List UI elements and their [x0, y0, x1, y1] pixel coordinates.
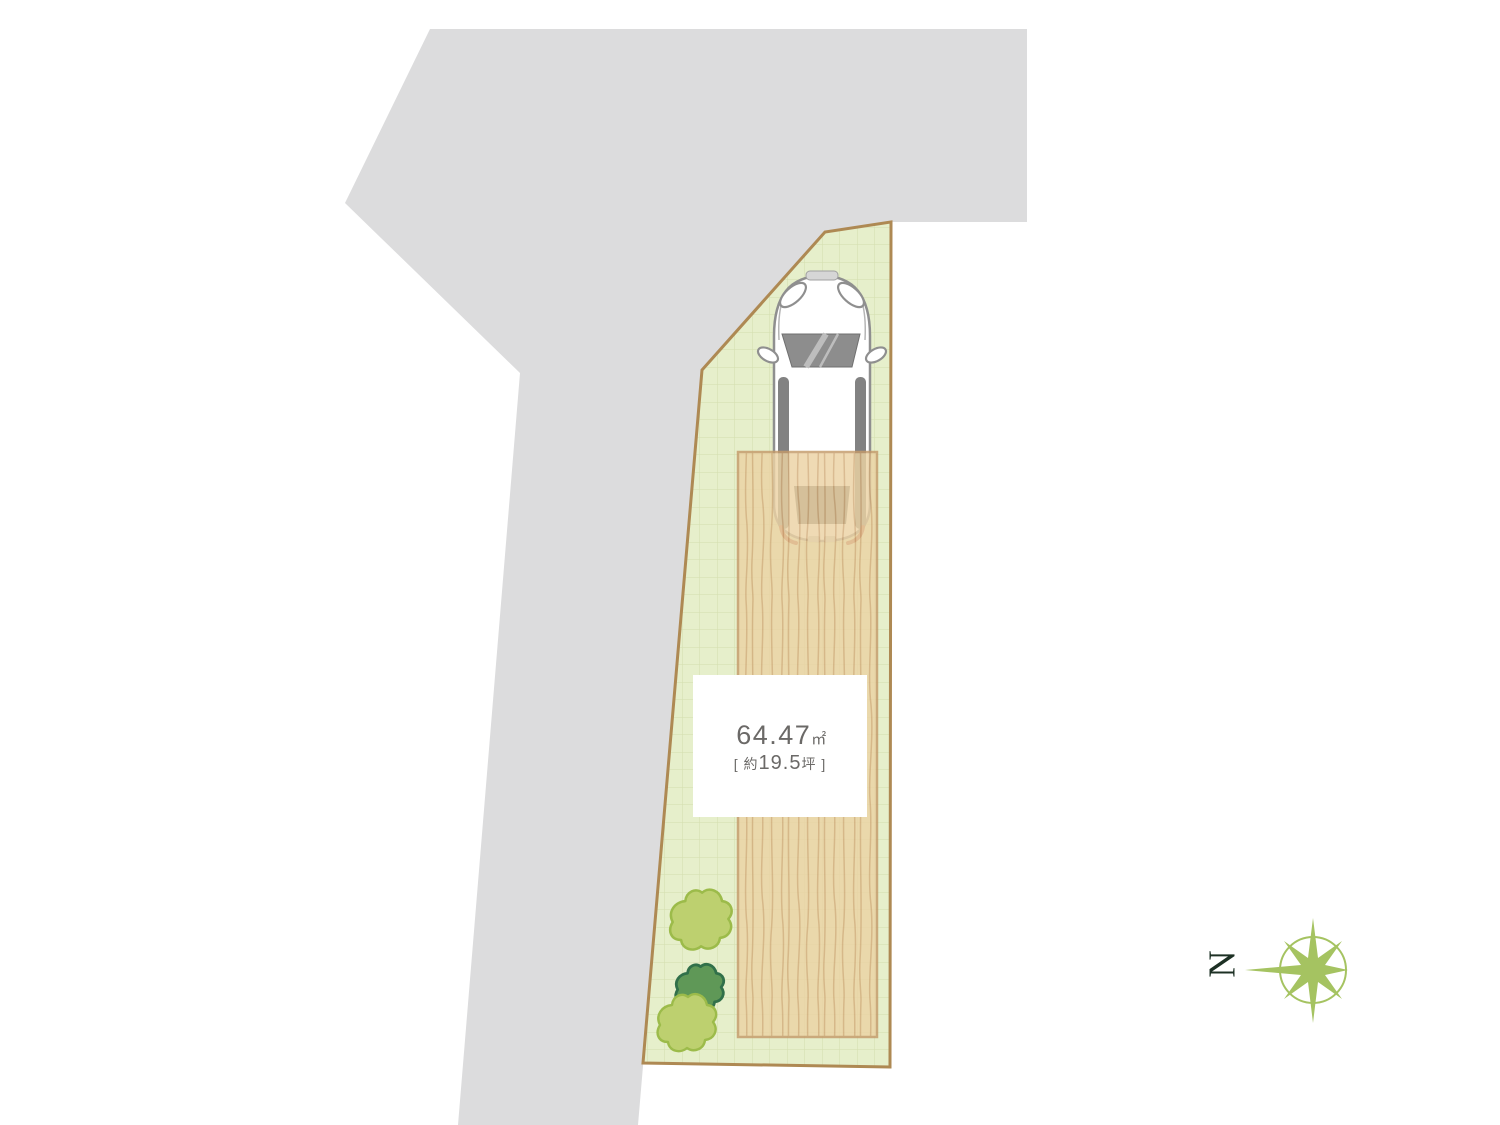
compass-north-label: N	[1201, 950, 1243, 977]
tsubo-prefix: [ 約	[734, 756, 759, 772]
area-label-box: 64.47㎡ [ 約19.5坪 ]	[693, 675, 867, 817]
site-plan-canvas: 64.47㎡ [ 約19.5坪 ] N	[0, 0, 1500, 1125]
compass-rose: N	[1201, 918, 1348, 1023]
compass-star	[1245, 918, 1348, 1023]
site-plan: 64.47㎡ [ 約19.5坪 ] N	[0, 0, 1500, 1125]
area-value: 64.47	[736, 720, 811, 750]
area-tsubo-text: [ 約19.5坪 ]	[734, 752, 827, 774]
car-front-plate	[806, 271, 838, 280]
area-unit: ㎡	[811, 731, 828, 748]
tsubo-suffix: 坪 ]	[801, 756, 826, 772]
tsubo-value: 19.5	[759, 752, 802, 774]
